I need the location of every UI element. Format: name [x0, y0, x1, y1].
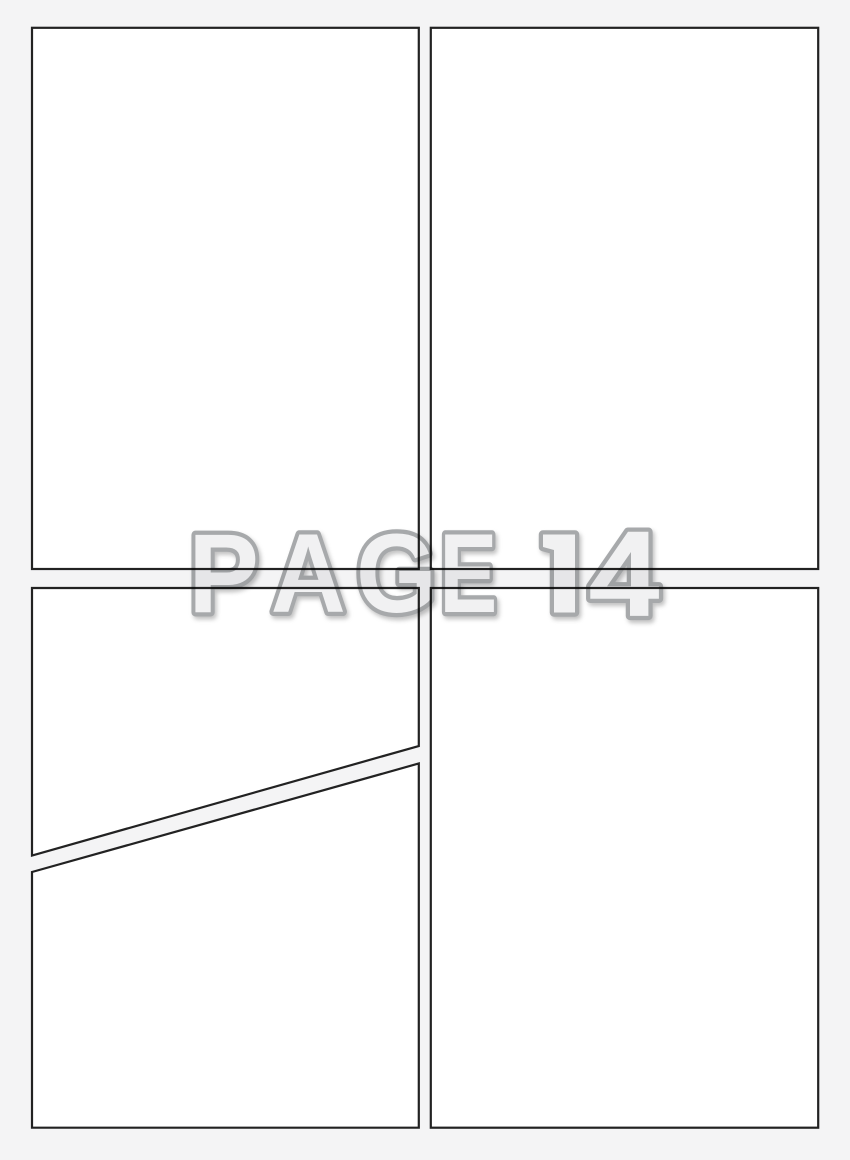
svg-text:A: A	[271, 510, 346, 635]
svg-text:P: P	[188, 511, 259, 636]
svg-text:G: G	[356, 510, 437, 635]
svg-text:E: E	[439, 511, 497, 636]
